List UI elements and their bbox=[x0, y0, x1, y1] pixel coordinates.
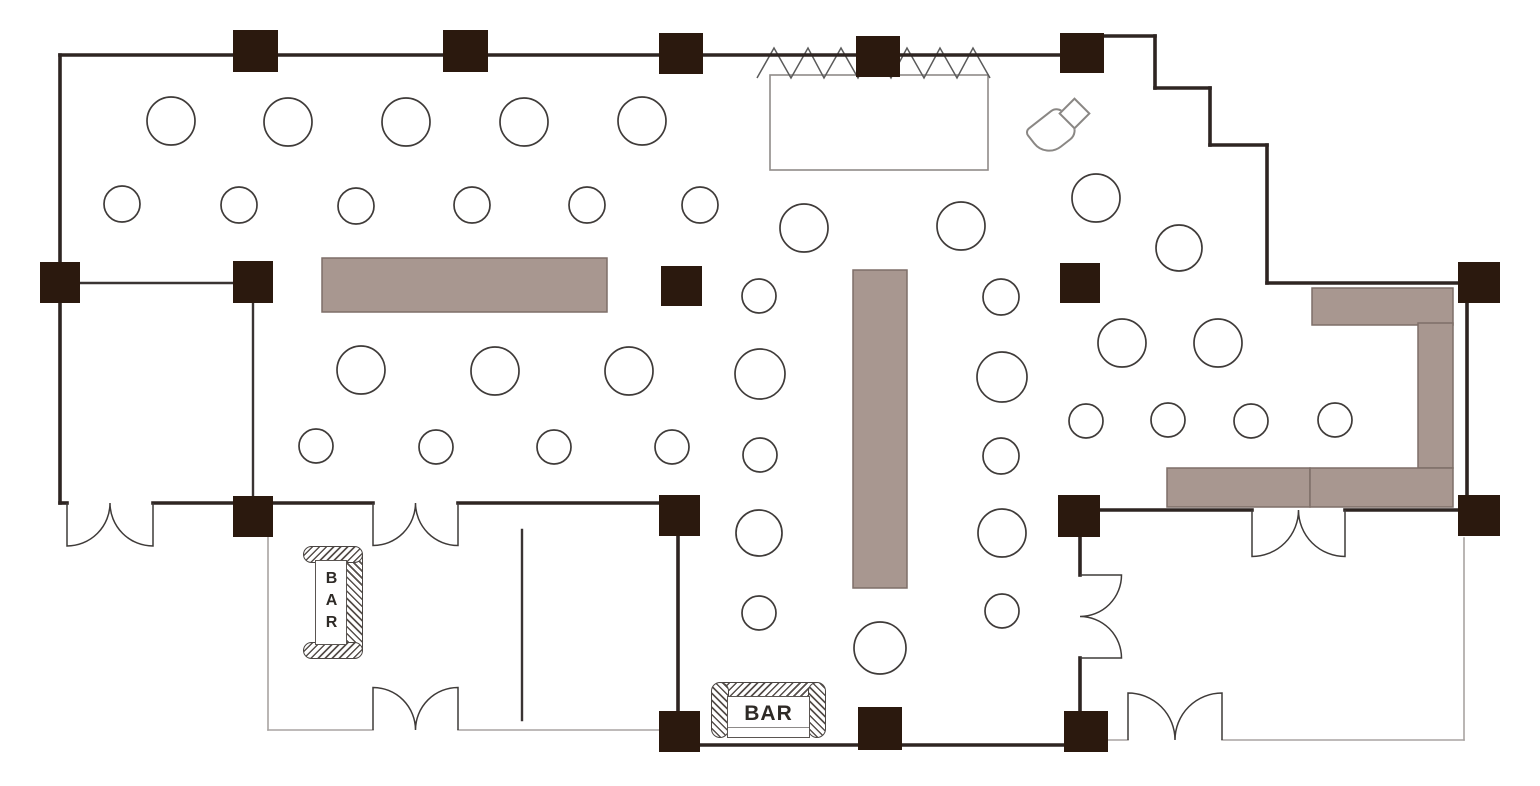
round-table bbox=[569, 187, 605, 223]
round-table bbox=[735, 349, 785, 399]
round-table bbox=[1151, 403, 1185, 437]
round-table bbox=[471, 347, 519, 395]
round-table bbox=[985, 594, 1019, 628]
buffet-table bbox=[853, 270, 907, 588]
column bbox=[1060, 33, 1104, 73]
round-table bbox=[382, 98, 430, 146]
round-table bbox=[983, 279, 1019, 315]
bar-end-cap-icon bbox=[808, 682, 826, 738]
column bbox=[1060, 263, 1100, 303]
round-table bbox=[221, 187, 257, 223]
double-door bbox=[1080, 575, 1122, 658]
double-door bbox=[1128, 693, 1222, 740]
column bbox=[661, 266, 702, 306]
round-table bbox=[742, 596, 776, 630]
buffet-table bbox=[1418, 323, 1453, 468]
buffet-table bbox=[322, 258, 607, 312]
column bbox=[1458, 495, 1500, 536]
double-door bbox=[1252, 510, 1345, 557]
bar-counter-horizontal: BAR bbox=[711, 682, 826, 738]
round-table bbox=[264, 98, 312, 146]
round-table bbox=[937, 202, 985, 250]
round-table bbox=[147, 97, 195, 145]
buffet-table bbox=[1310, 468, 1453, 507]
round-table bbox=[299, 429, 333, 463]
round-table bbox=[337, 346, 385, 394]
column bbox=[659, 711, 700, 752]
round-table bbox=[655, 430, 689, 464]
bar-hatched-edge bbox=[346, 555, 363, 650]
round-table bbox=[618, 97, 666, 145]
buffet-table bbox=[1167, 468, 1310, 507]
podium bbox=[1022, 96, 1106, 168]
column bbox=[40, 262, 80, 303]
floor-plan: BAR BAR bbox=[0, 0, 1540, 786]
round-table bbox=[977, 352, 1027, 402]
column bbox=[856, 36, 900, 77]
round-table bbox=[682, 187, 718, 223]
bar-label: BAR bbox=[727, 696, 810, 738]
round-table bbox=[742, 279, 776, 313]
bar-counter-line bbox=[728, 727, 809, 728]
stage bbox=[770, 75, 988, 170]
bar-counter-vertical: BAR bbox=[303, 546, 363, 659]
round-table bbox=[1234, 404, 1268, 438]
column bbox=[233, 496, 273, 537]
round-table bbox=[1194, 319, 1242, 367]
round-table bbox=[1318, 403, 1352, 437]
round-table bbox=[454, 187, 490, 223]
round-table bbox=[1098, 319, 1146, 367]
round-table bbox=[500, 98, 548, 146]
column bbox=[1064, 711, 1108, 752]
double-door bbox=[373, 688, 458, 731]
buffet-table bbox=[1312, 288, 1453, 325]
round-table bbox=[104, 186, 140, 222]
round-table bbox=[605, 347, 653, 395]
plan-drawing bbox=[0, 0, 1540, 786]
round-table bbox=[780, 204, 828, 252]
round-table bbox=[983, 438, 1019, 474]
column bbox=[1058, 495, 1100, 537]
column bbox=[659, 495, 700, 536]
bar-label: BAR bbox=[315, 560, 347, 645]
double-door bbox=[373, 503, 458, 546]
column bbox=[659, 33, 703, 74]
column bbox=[443, 30, 488, 72]
column bbox=[233, 30, 278, 72]
round-table bbox=[419, 430, 453, 464]
round-table bbox=[537, 430, 571, 464]
round-table bbox=[1072, 174, 1120, 222]
double-door bbox=[67, 503, 153, 546]
round-table bbox=[743, 438, 777, 472]
round-table bbox=[854, 622, 906, 674]
column bbox=[1458, 262, 1500, 303]
round-table bbox=[736, 510, 782, 556]
column bbox=[858, 707, 902, 750]
round-table bbox=[338, 188, 374, 224]
round-table bbox=[1069, 404, 1103, 438]
round-table bbox=[1156, 225, 1202, 271]
round-table bbox=[978, 509, 1026, 557]
column bbox=[233, 261, 273, 303]
